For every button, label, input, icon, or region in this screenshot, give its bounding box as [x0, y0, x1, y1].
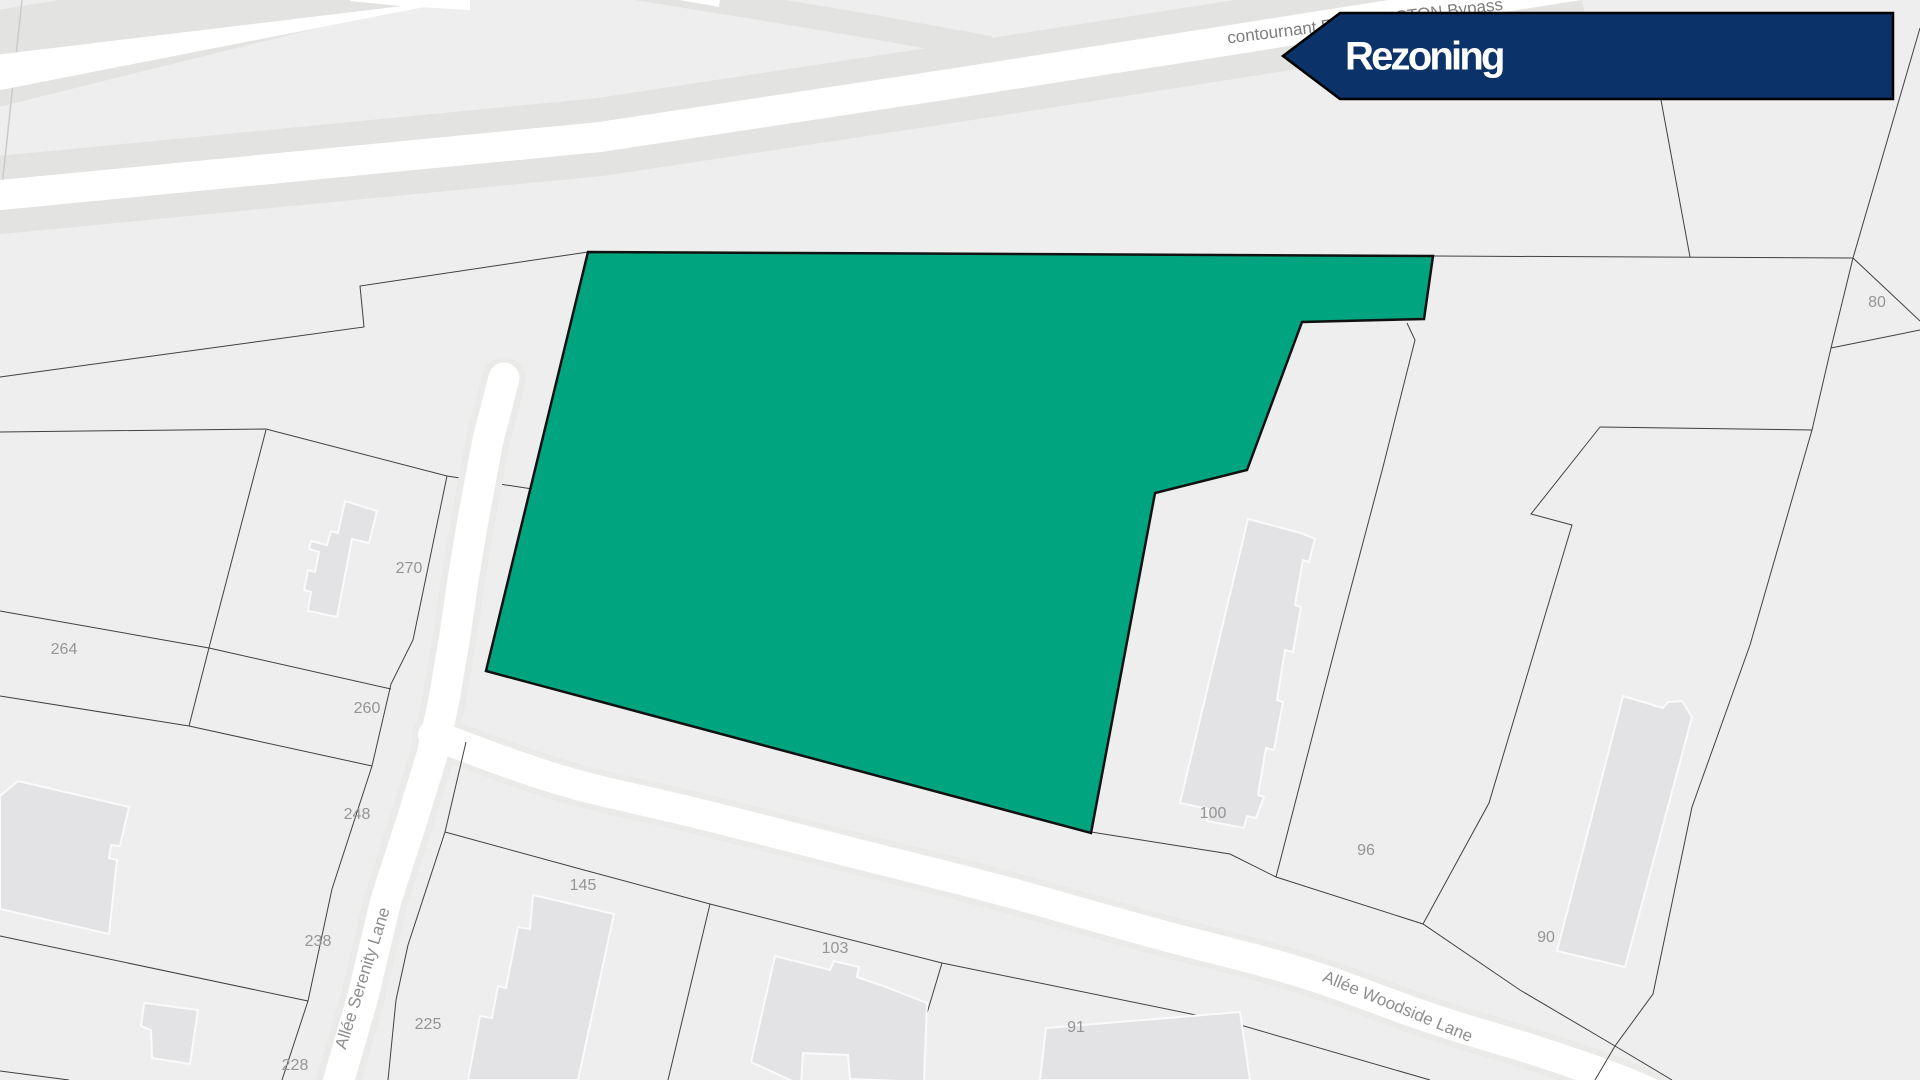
svg-text:270: 270 [396, 560, 423, 577]
svg-text:103: 103 [822, 940, 849, 957]
svg-text:Rezoning: Rezoning [1345, 35, 1503, 79]
svg-text:248: 248 [344, 806, 371, 823]
svg-text:145: 145 [570, 877, 597, 894]
svg-text:80: 80 [1868, 294, 1886, 311]
svg-text:238: 238 [305, 933, 332, 950]
svg-text:225: 225 [415, 1016, 442, 1033]
svg-text:260: 260 [354, 700, 381, 717]
svg-text:228: 228 [282, 1057, 309, 1074]
svg-text:90: 90 [1537, 929, 1555, 946]
svg-text:264: 264 [51, 641, 78, 658]
svg-text:100: 100 [1200, 805, 1227, 822]
svg-text:91: 91 [1067, 1019, 1085, 1036]
svg-text:96: 96 [1357, 842, 1375, 859]
